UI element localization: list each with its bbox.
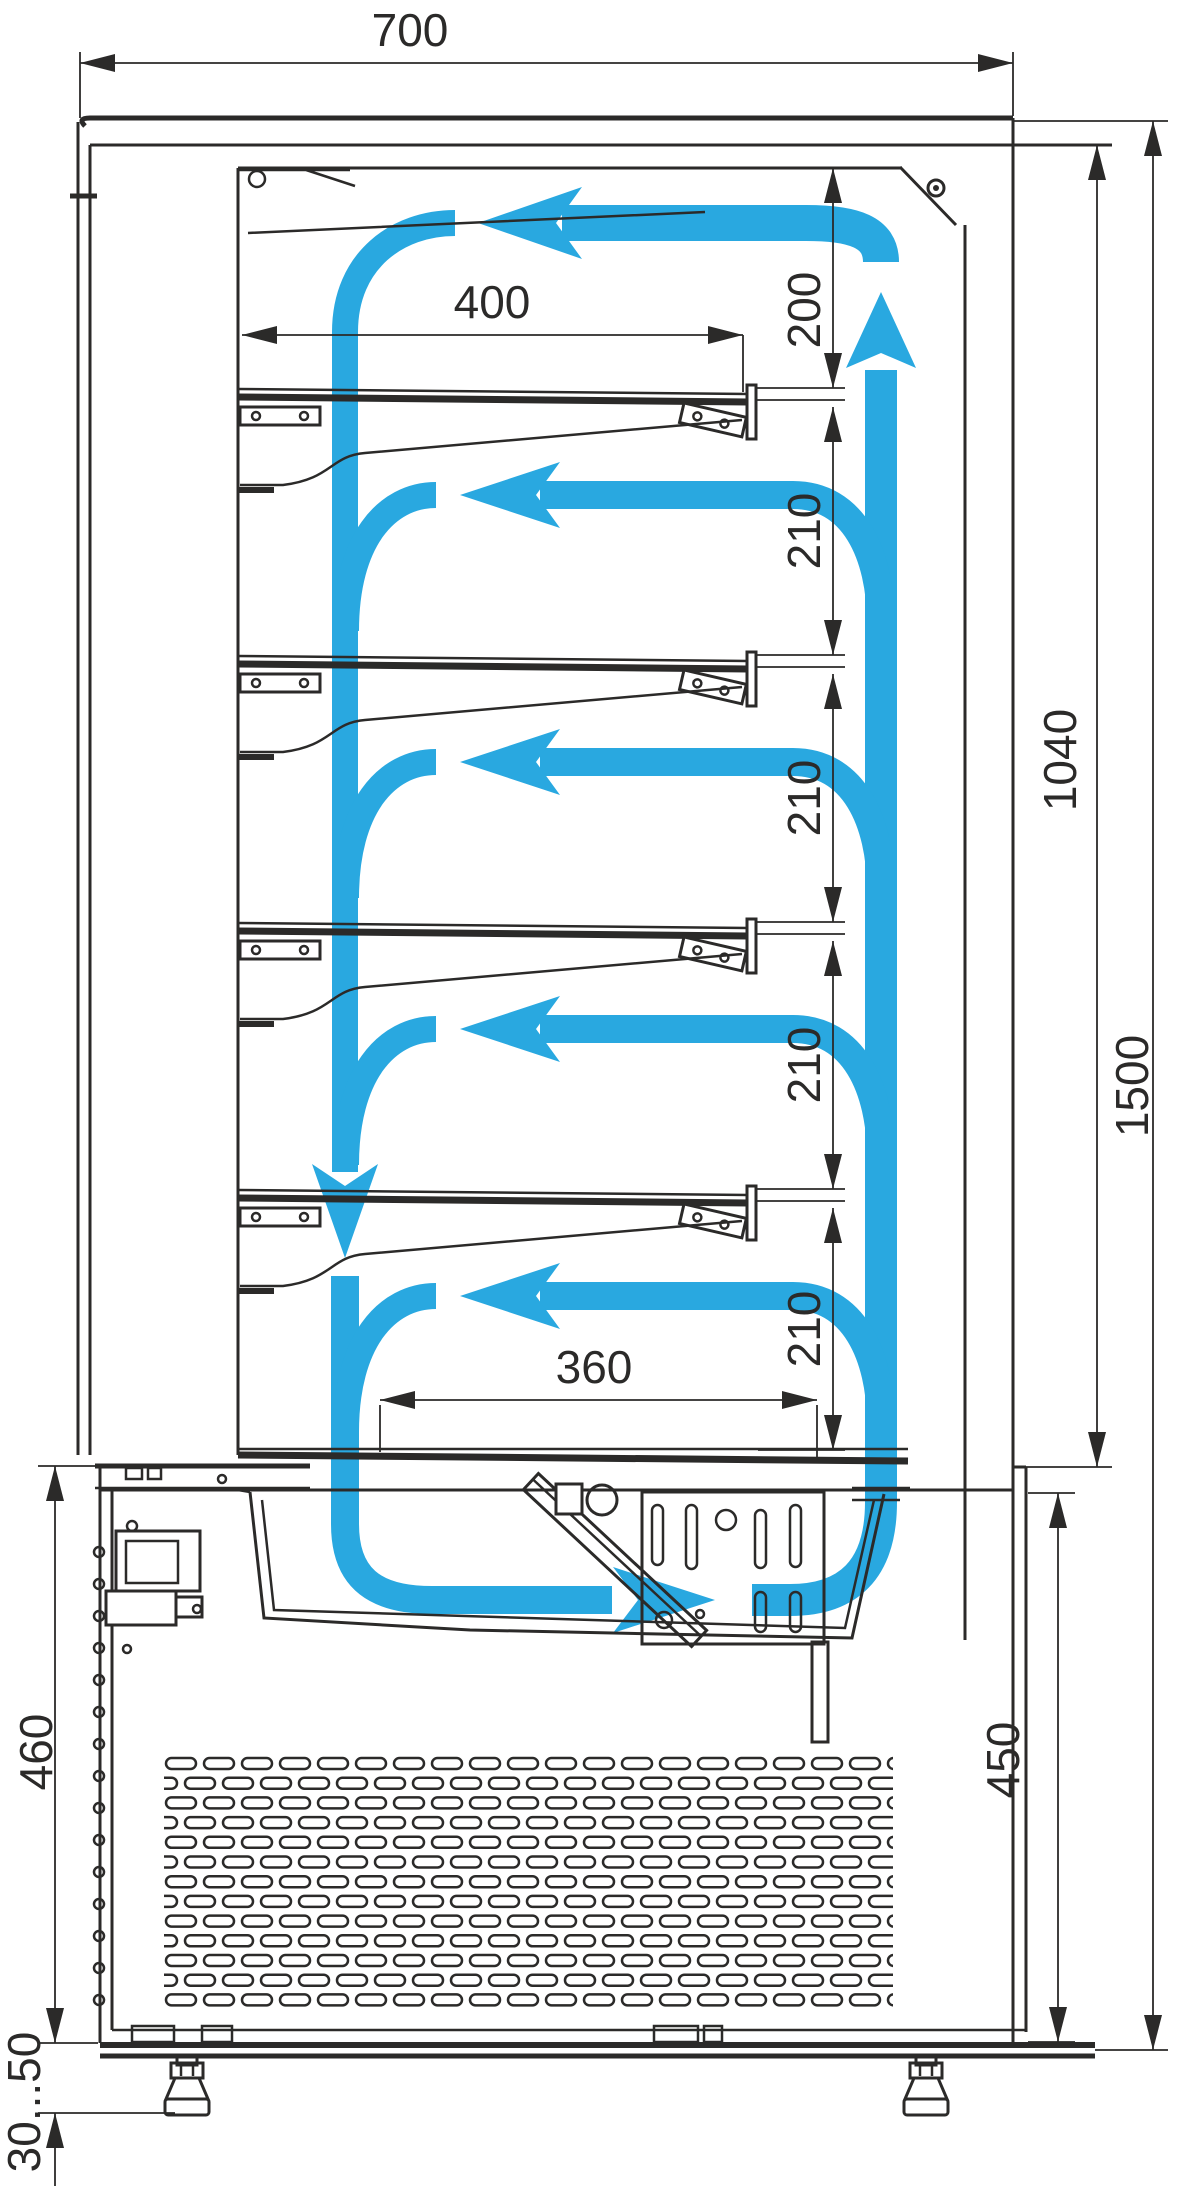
perforated-plate bbox=[642, 1492, 824, 1644]
dim-460: 460 bbox=[10, 1466, 98, 2043]
dim-700: 700 bbox=[80, 4, 1013, 118]
dim-400-label: 400 bbox=[454, 276, 531, 328]
technical-drawing: 700 400 200 210 210 bbox=[0, 0, 1189, 2186]
dim-210-4: 210 bbox=[778, 1208, 842, 1450]
dim-700-label: 700 bbox=[372, 4, 449, 56]
dim-400: 400 bbox=[242, 276, 743, 392]
sill-clip-2 bbox=[148, 1468, 161, 1479]
dim-210-1: 210 bbox=[778, 407, 842, 655]
rear-chamfer bbox=[900, 167, 956, 225]
dim-200: 200 bbox=[778, 168, 842, 388]
dim-210-3: 210 bbox=[778, 941, 842, 1189]
dim-210-4-label: 210 bbox=[778, 1291, 830, 1368]
dim-210-3-label: 210 bbox=[778, 1027, 830, 1104]
base-frame bbox=[100, 2026, 1095, 2056]
dim-1040: 1040 bbox=[1016, 145, 1112, 1467]
dim-360-label: 360 bbox=[556, 1341, 633, 1393]
chamfer-hole-inner bbox=[933, 185, 939, 191]
foot-left bbox=[165, 2057, 209, 2115]
dim-1040-label: 1040 bbox=[1034, 709, 1086, 811]
vent-grille bbox=[147, 1758, 918, 2005]
dim-210-2-label: 210 bbox=[778, 760, 830, 837]
cabinet bbox=[70, 118, 1112, 2115]
drain-tube bbox=[812, 1642, 828, 1742]
dim-210-2: 210 bbox=[778, 674, 842, 922]
dim-450-label: 450 bbox=[977, 1722, 1029, 1799]
dim-200-label: 200 bbox=[778, 272, 830, 349]
dim-210-1-label: 210 bbox=[778, 493, 830, 570]
dim-feet-label: 30...50 bbox=[0, 2032, 50, 2173]
airflow-down-arrowhead bbox=[312, 1164, 378, 1258]
dim-1500: 1500 bbox=[1013, 121, 1168, 2050]
dim-460-label: 460 bbox=[10, 1714, 62, 1791]
sill-screw bbox=[218, 1475, 226, 1483]
machine-compartment bbox=[94, 1466, 1095, 2115]
dim-360: 360 bbox=[380, 1341, 817, 1458]
relay-box bbox=[106, 1521, 202, 1653]
dim-1500-label: 1500 bbox=[1106, 1035, 1158, 1137]
foot-right bbox=[904, 2057, 948, 2115]
ceiling-corner-arc bbox=[249, 171, 265, 187]
cabinet-top bbox=[82, 118, 1013, 126]
drawing-page: 700 400 200 210 210 bbox=[0, 0, 1189, 2186]
sill-clip-1 bbox=[126, 1468, 142, 1479]
airflow-up-arrowhead bbox=[846, 292, 916, 368]
